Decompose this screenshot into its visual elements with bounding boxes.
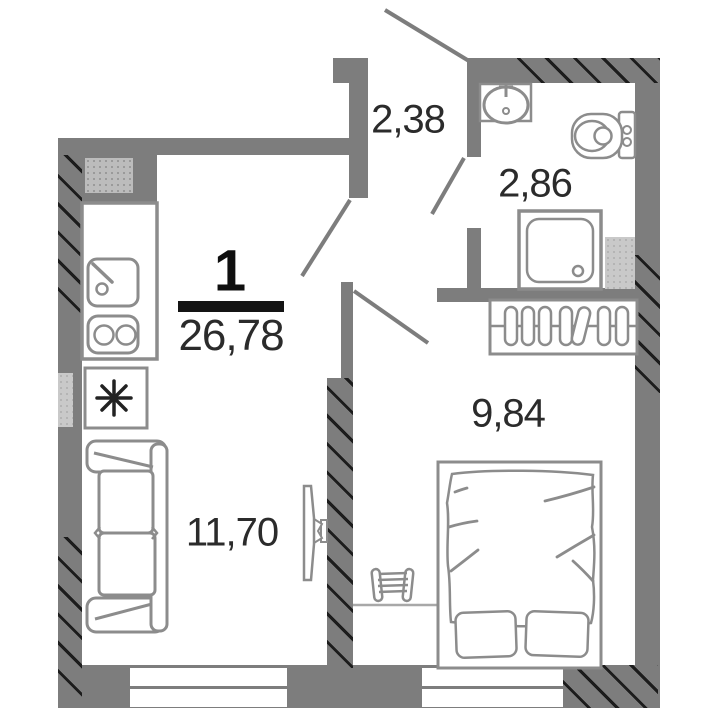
fixtures-layer bbox=[0, 0, 720, 720]
stove-icon bbox=[88, 316, 138, 353]
floorplan: 1 26,78 2,38 2,86 9,84 11,70 bbox=[0, 0, 720, 720]
room-label-bathroom: 2,86 bbox=[498, 162, 572, 207]
apartment-number: 1 bbox=[214, 238, 246, 305]
bed bbox=[438, 462, 601, 668]
room-label-bedroom: 9,84 bbox=[471, 392, 545, 437]
wash-basin-icon bbox=[480, 84, 531, 123]
room-label-living-room: 11,70 bbox=[186, 511, 278, 556]
hanger-icon bbox=[505, 306, 628, 346]
total-area-label: 26,78 bbox=[178, 311, 283, 361]
shower-icon bbox=[519, 211, 601, 289]
entrance-door-swing-icon bbox=[385, 10, 469, 61]
fridge-star-icon bbox=[85, 368, 147, 428]
toilet-icon bbox=[572, 112, 635, 158]
pillow bbox=[455, 611, 517, 658]
pillow bbox=[525, 611, 588, 657]
kitchen-sink-icon bbox=[88, 259, 138, 306]
stool-icon bbox=[371, 569, 413, 602]
tv-icon bbox=[304, 486, 327, 580]
sofa bbox=[87, 441, 167, 632]
bathroom-door-swing-icon bbox=[432, 158, 464, 214]
room-label-hallway: 2,38 bbox=[371, 98, 445, 143]
wardrobe bbox=[490, 300, 637, 354]
living-room-door-swing-icon bbox=[302, 200, 350, 276]
bedroom-door-swing-icon bbox=[354, 291, 428, 343]
